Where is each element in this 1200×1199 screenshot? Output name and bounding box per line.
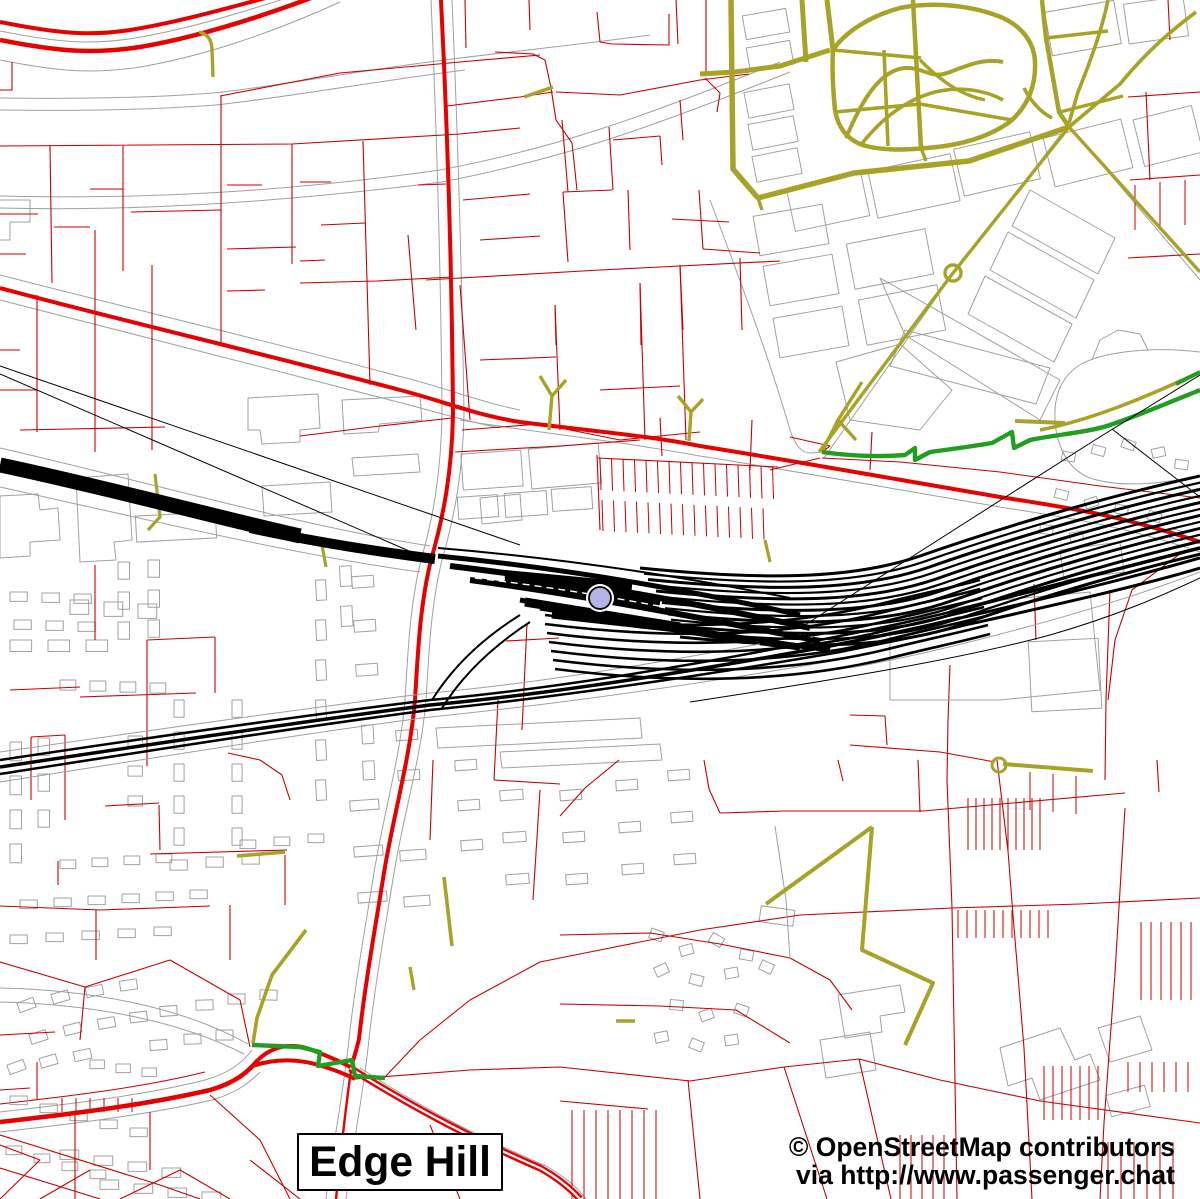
svg-text:Edge Hill: Edge Hill xyxy=(309,1139,491,1186)
svg-text:via http://www.passenger.chat: via http://www.passenger.chat xyxy=(796,1160,1175,1190)
svg-text:© OpenStreetMap contributors: © OpenStreetMap contributors xyxy=(789,1132,1175,1162)
